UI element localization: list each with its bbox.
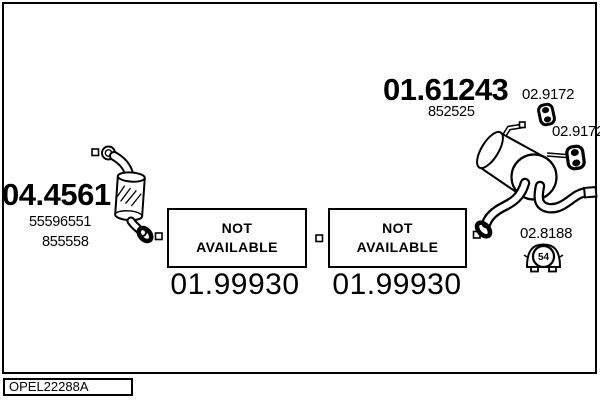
diagram-code-label: OPEL22288A [3, 378, 133, 396]
exhaust-parts-diagram: 04.4561 55596551 855558 01.61243 852525 … [0, 0, 600, 400]
rubber-hanger-icon [566, 145, 585, 169]
connector-square-icon [156, 233, 163, 240]
status-line: AVAILABLE [357, 238, 439, 257]
connector-square-icon [316, 235, 323, 242]
muffler-oe-ref: 852525 [428, 105, 475, 120]
hanger-upper-part-number[interactable]: 02.9172 [522, 87, 574, 102]
mounting-kit-part-number[interactable]: 02.8188 [520, 226, 572, 241]
mid-pipe-left-part-number[interactable]: 01.99930 [165, 270, 305, 300]
mid-pipe-left-status-box[interactable]: NOT AVAILABLE [167, 208, 307, 268]
catalyst-part-number[interactable]: 04.4561 [2, 179, 111, 210]
car-badge-number: 54 [533, 253, 554, 263]
catalyst-oe-ref-1: 55596551 [29, 215, 91, 230]
diagram-code: OPEL22288A [9, 379, 89, 394]
muffler-part-number[interactable]: 01.61243 [383, 74, 508, 105]
status-line: NOT [222, 219, 253, 238]
tailpipe-tip-icon [584, 187, 596, 197]
status-line: NOT [382, 219, 413, 238]
mid-pipe-right-part-number[interactable]: 01.99930 [327, 270, 467, 300]
catalyst-oe-ref-2: 855558 [42, 235, 89, 250]
muffler-drawing[interactable] [472, 122, 596, 239]
mid-pipe-right-status-box[interactable]: NOT AVAILABLE [328, 208, 467, 268]
hanger-lower-part-number[interactable]: 02.9172 [552, 124, 600, 139]
connector-square-icon [92, 149, 99, 156]
status-line: AVAILABLE [196, 238, 278, 257]
